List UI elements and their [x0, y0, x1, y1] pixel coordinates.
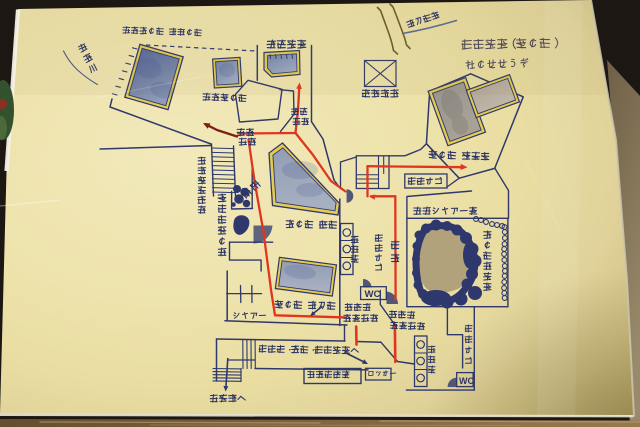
- svg-text:WC: WC: [459, 376, 474, 386]
- svg-text:WC: WC: [365, 289, 381, 300]
